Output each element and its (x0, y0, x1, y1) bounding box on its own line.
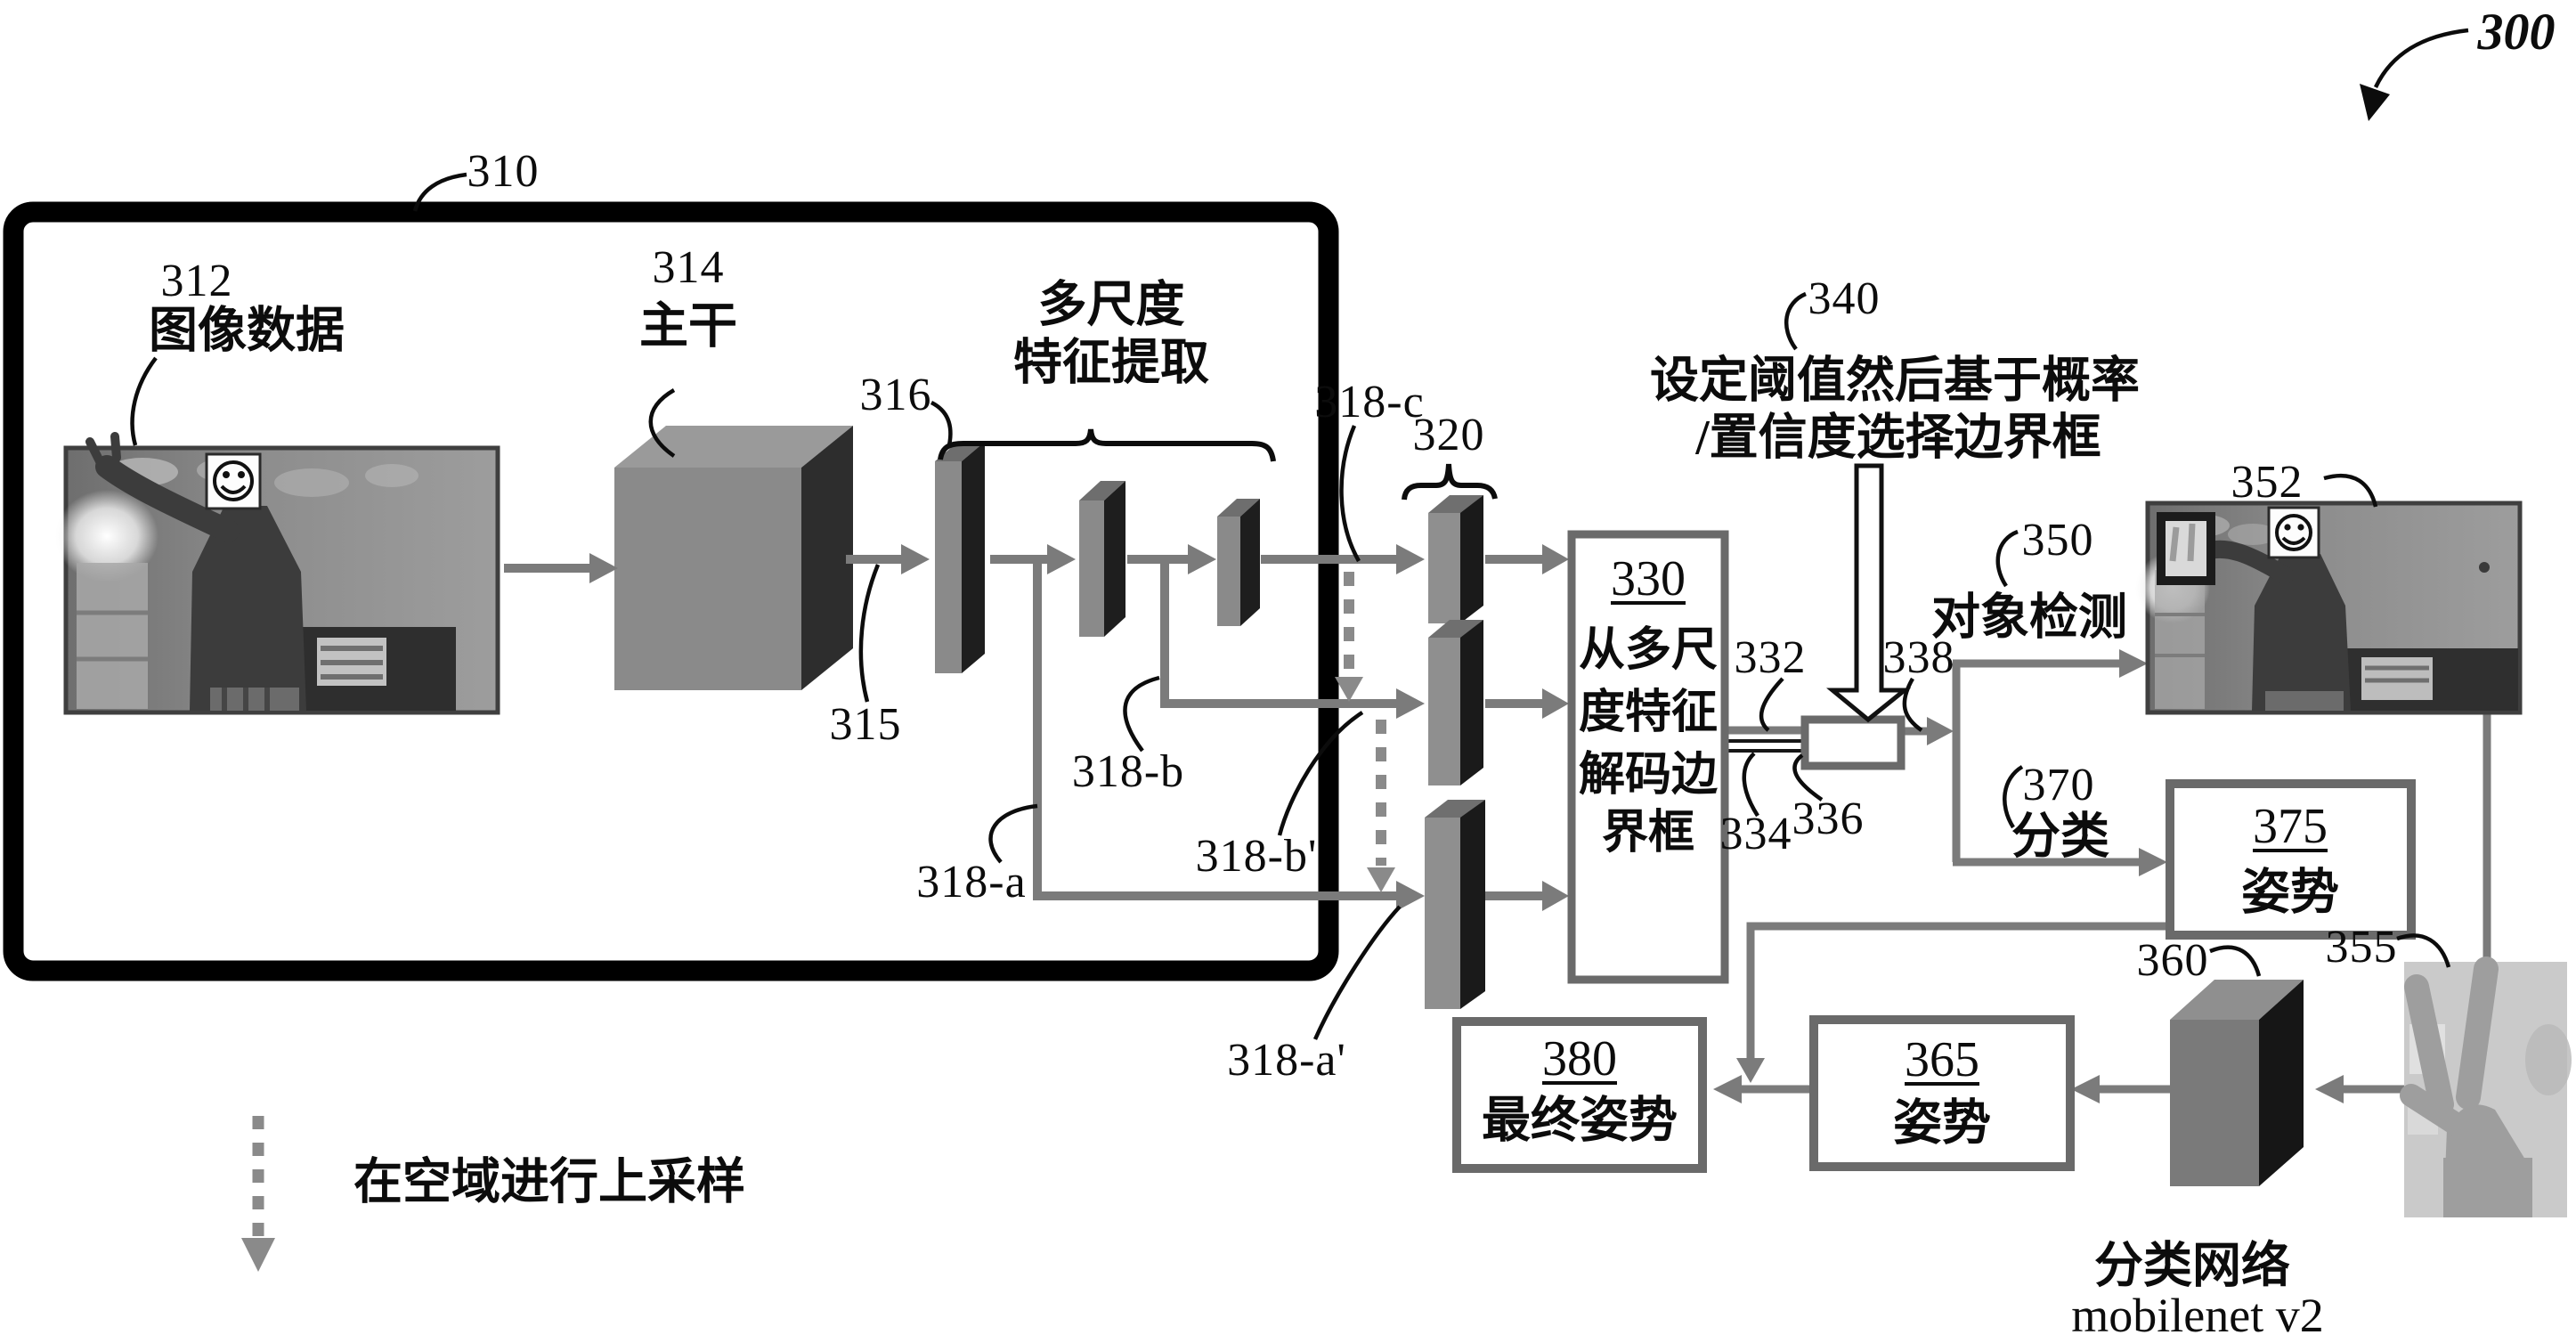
figure-graphics (0, 0, 2576, 1343)
pose-375-label: 姿势 (2241, 868, 2339, 917)
legend-upsample-label: 在空域进行上采样 (353, 1158, 745, 1207)
ref-318a-up: 318-a' (1227, 1038, 1346, 1084)
ref-350: 350 (2022, 517, 2094, 564)
ref-318c: 318-c (1314, 379, 1424, 426)
legend-upsample-arrow (241, 1116, 275, 1272)
decoder-output-lines (1727, 741, 1806, 751)
cls-network-caption-line2: mobilenet v2 (2071, 1291, 2323, 1339)
feature-slab-c (1217, 499, 1260, 626)
final-pose-label: 最终姿势 (1482, 1096, 1678, 1145)
threshold-label-line2: /置信度选择边界框 (1695, 413, 2101, 462)
classifier-cube-360 (2170, 980, 2304, 1186)
ref-315: 315 (830, 702, 902, 748)
ref-316: 316 (860, 372, 932, 419)
decoder-label-line1: 从多尺 (1579, 628, 1718, 674)
ref-310: 310 (467, 149, 540, 195)
decoder-label-line2: 度特征 (1579, 690, 1718, 737)
selector-rect-338 (1805, 720, 1901, 766)
ref-318b-up: 318-b' (1196, 834, 1318, 880)
ref-380: 380 (1542, 1034, 1617, 1084)
ref-360: 360 (2137, 938, 2209, 984)
smiley-face-icon (207, 454, 260, 509)
classification-label: 分类 (2011, 812, 2109, 861)
ref-334: 334 (1720, 811, 1792, 858)
figure-ref-300: 300 (2478, 6, 2556, 58)
ref-314: 314 (653, 245, 725, 291)
multiscale-label-line2: 特征提取 (1013, 338, 1209, 387)
feature-slab-b (1079, 481, 1125, 637)
pose-365-label: 姿势 (1893, 1099, 1991, 1148)
input-image-312 (55, 436, 498, 712)
cls-network-caption-line1: 分类网络 (2094, 1241, 2290, 1290)
backbone-cube-314 (614, 426, 853, 690)
ref-375: 375 (2253, 802, 2328, 851)
backbone-label: 主干 (639, 302, 737, 351)
ref-320: 320 (1413, 412, 1485, 459)
detection-image-352 (2135, 503, 2520, 712)
object-detection-label: 对象检测 (1931, 593, 2127, 642)
ref-365: 365 (1905, 1035, 1979, 1085)
ref-340: 340 (1808, 276, 1881, 322)
threshold-label-line1: 设定阈值然后基于概率 (1650, 356, 2140, 405)
ref-330: 330 (1611, 554, 1686, 604)
image-data-label: 图像数据 (149, 306, 345, 355)
shelf (77, 563, 148, 709)
hand-bounding-box (2161, 517, 2211, 581)
ref-318a: 318-a (916, 859, 1026, 906)
ref-312: 312 (161, 258, 233, 305)
ref-332: 332 (1735, 635, 1807, 681)
smiley-face-icon (2269, 508, 2319, 558)
hand-crop-image-355 (2404, 962, 2572, 1217)
ref-355: 355 (2326, 924, 2398, 971)
pyramid-slab-c (1428, 495, 1483, 623)
pyramid-slab-a (1425, 800, 1485, 1009)
decoder-label-line3: 解码边 (1579, 753, 1718, 799)
ref-370: 370 (2023, 762, 2095, 809)
ref-352: 352 (2231, 460, 2304, 506)
multiscale-label-line1: 多尺度 (1037, 281, 1184, 330)
patent-figure: 300 310 312 图像数据 314 主干 315 316 多尺度 特征提取… (0, 0, 2576, 1343)
pyramid-slab-b (1428, 620, 1483, 785)
decoder-label-line4: 界框 (1602, 810, 1694, 857)
upsample-arrows (1335, 572, 1395, 892)
feature-slab-a (935, 442, 985, 673)
ref-318b: 318-b (1072, 749, 1184, 795)
ref-336: 336 (1792, 796, 1865, 842)
